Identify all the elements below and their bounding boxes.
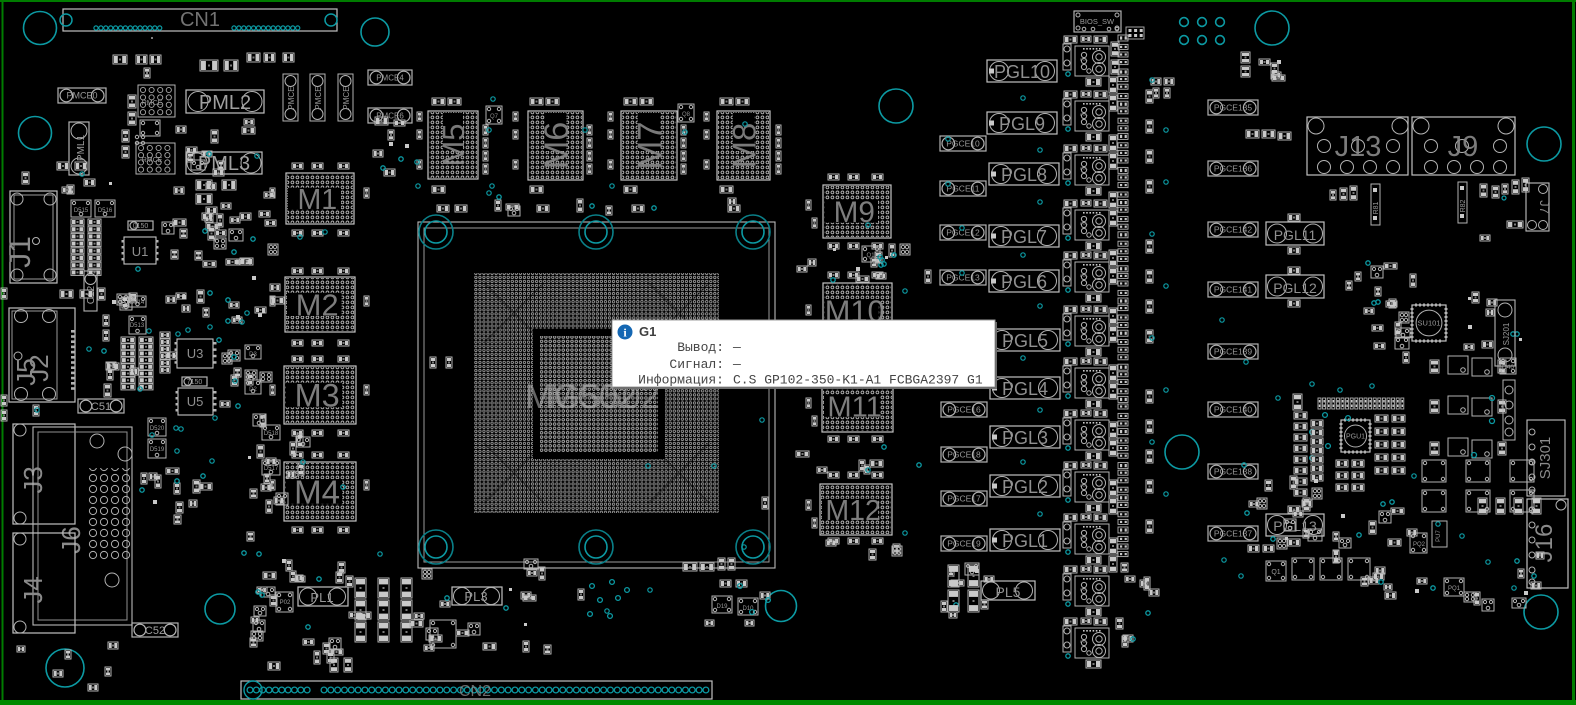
svg-text:PL1: PL1 (310, 590, 333, 605)
svg-text:PGL8: PGL8 (1001, 165, 1047, 185)
svg-text:PQ1: PQ1 (1448, 586, 1461, 592)
svg-text:PGL: PGL (1080, 327, 1089, 332)
svg-text:PGL6: PGL6 (1001, 272, 1047, 292)
svg-text:PGCE16: PGCE16 (947, 405, 981, 415)
svg-text:PGCE141: PGCE141 (1214, 285, 1253, 295)
svg-text:CN1: CN1 (180, 9, 220, 31)
svg-text:R82: R82 (1460, 199, 1467, 212)
svg-text:D518: D518 (264, 431, 279, 437)
svg-text:M6: M6 (538, 122, 576, 169)
svg-text:PGU1: PGU1 (1346, 433, 1365, 440)
svg-text:RMCE: RMCE (142, 157, 163, 164)
svg-text:PGL: PGL (1080, 483, 1089, 488)
svg-text:D517: D517 (264, 466, 279, 472)
svg-text:PGCE13: PGCE13 (946, 273, 980, 283)
svg-text:D19: D19 (716, 604, 728, 610)
svg-text:D520: D520 (150, 426, 165, 432)
svg-text:PGL13: PGL13 (1273, 518, 1317, 534)
svg-text:PGL2: PGL2 (1002, 477, 1048, 497)
svg-text:Q8: Q8 (682, 112, 691, 118)
svg-text:PGL7: PGL7 (1001, 227, 1047, 247)
svg-text:SJ201: SJ201 (1502, 322, 1511, 345)
svg-text:PGL3: PGL3 (1002, 428, 1048, 448)
svg-text:PGCE135: PGCE135 (1214, 103, 1253, 113)
svg-text:Q1: Q1 (1271, 569, 1280, 576)
svg-text:PGCE142: PGCE142 (1214, 225, 1253, 235)
svg-text:RMCE: RMCE (142, 100, 163, 107)
svg-text:PGL: PGL (1080, 57, 1089, 62)
svg-text:D514: D514 (130, 300, 145, 306)
svg-text:—: — (732, 357, 741, 372)
svg-text:PGL10: PGL10 (994, 62, 1050, 82)
svg-text:J9: J9 (1448, 131, 1479, 163)
svg-text:PMCE: PMCE (314, 86, 323, 109)
svg-text:PGL: PGL (1080, 431, 1089, 436)
svg-text:M4: M4 (294, 474, 340, 511)
svg-text:D516: D516 (98, 208, 113, 214)
svg-text:PGL5: PGL5 (1002, 331, 1048, 351)
svg-text:P02: P02 (280, 600, 291, 606)
svg-text:M5: M5 (436, 123, 471, 166)
svg-text:M8: M8 (725, 123, 762, 169)
svg-text:D40: D40 (1502, 364, 1514, 371)
svg-text:R81: R81 (1373, 201, 1380, 214)
svg-text:G1: G1 (639, 324, 656, 339)
svg-text:C51: C51 (91, 401, 111, 413)
svg-text:PGL1: PGL1 (1002, 531, 1048, 551)
svg-text:M2: M2 (296, 288, 339, 323)
svg-text:J6: J6 (56, 526, 86, 553)
svg-text:J2: J2 (24, 354, 54, 381)
svg-text:7150: 7150 (187, 379, 203, 386)
svg-text:PGCE140: PGCE140 (1214, 405, 1253, 415)
svg-text:C52: C52 (145, 625, 165, 637)
svg-text:Q7: Q7 (490, 114, 499, 120)
svg-text:SU101: SU101 (1418, 319, 1441, 328)
svg-text:PL3: PL3 (464, 589, 487, 604)
svg-text:PQ2: PQ2 (1413, 542, 1426, 548)
svg-text:PGL: PGL (1080, 379, 1089, 384)
svg-text:—: — (732, 340, 741, 355)
svg-text:J7: J7 (1537, 200, 1552, 214)
svg-text:BIOS_SW: BIOS_SW (1080, 17, 1115, 26)
svg-text:PGCE19: PGCE19 (947, 539, 981, 549)
svg-text:PGL9: PGL9 (999, 114, 1045, 134)
svg-text:Сигнал:: Сигнал: (669, 357, 724, 372)
svg-text:D513: D513 (130, 323, 145, 329)
svg-text:PGCE10: PGCE10 (946, 139, 980, 149)
svg-text:D519: D519 (150, 447, 165, 453)
svg-text:PGL: PGL (1080, 112, 1089, 117)
svg-text:Информация:: Информация: (638, 373, 724, 388)
svg-text:U1: U1 (132, 244, 149, 259)
svg-text:M1: M1 (297, 184, 337, 216)
svg-text:U5: U5 (187, 394, 204, 409)
svg-text:PGCE136: PGCE136 (1214, 164, 1253, 174)
svg-text:PGCE11: PGCE11 (947, 184, 980, 194)
svg-text:U3: U3 (187, 346, 204, 361)
svg-text:PGL: PGL (1080, 221, 1089, 226)
svg-text:PGL: PGL (1080, 535, 1089, 540)
svg-text:J4: J4 (18, 576, 48, 603)
svg-text:SJ301: SJ301 (1537, 437, 1554, 480)
svg-text:C.S GP102-350-K1-A1 FCBGA2397: C.S GP102-350-K1-A1 FCBGA2397 G1 (733, 373, 983, 388)
svg-text:PGL11: PGL11 (1274, 227, 1317, 243)
svg-text:D2: D2 (249, 387, 257, 393)
svg-text:M11: M11 (827, 391, 881, 423)
svg-text:PMCE4: PMCE4 (376, 73, 404, 82)
svg-text:PGCE138: PGCE138 (1214, 467, 1253, 477)
svg-text:PMCE: PMCE (287, 86, 296, 109)
svg-text:PGCE18: PGCE18 (947, 450, 981, 460)
svg-text:D3: D3 (249, 352, 257, 358)
svg-text:M3: M3 (295, 378, 340, 414)
svg-text:PGCE137: PGCE137 (1214, 529, 1253, 539)
svg-text:PGCE17: PGCE17 (947, 494, 981, 504)
svg-text:PGL: PGL (1080, 273, 1089, 278)
svg-text:PML1: PML1 (76, 135, 87, 162)
svg-text:PMCE: PMCE (342, 86, 351, 109)
svg-text:PGCE12: PGCE12 (946, 228, 980, 238)
svg-text:PGL: PGL (1080, 587, 1089, 592)
svg-text:M9: M9 (834, 196, 875, 229)
svg-text:CN2: CN2 (459, 683, 491, 700)
svg-text:PMCE0: PMCE0 (66, 91, 97, 101)
svg-text:PL5: PL5 (996, 584, 1021, 600)
svg-text:D515: D515 (74, 208, 89, 214)
svg-text:PGL: PGL (1080, 166, 1089, 171)
svg-text:PGL12: PGL12 (1273, 280, 1317, 296)
svg-text:0150: 0150 (133, 223, 149, 230)
svg-text:M12: M12 (825, 495, 881, 527)
svg-text:PU7: PU7 (1436, 530, 1442, 542)
svg-text:M7: M7 (631, 121, 669, 169)
svg-text:J13: J13 (1335, 131, 1382, 163)
svg-text:PMCE6: PMCE6 (376, 111, 404, 120)
svg-text:Вывод:: Вывод: (677, 340, 724, 355)
svg-text:PGL4: PGL4 (1002, 379, 1048, 399)
svg-text:PGL: PGL (1080, 639, 1089, 644)
svg-text:PGCE139: PGCE139 (1214, 347, 1253, 357)
svg-text:PML2: PML2 (199, 92, 251, 114)
